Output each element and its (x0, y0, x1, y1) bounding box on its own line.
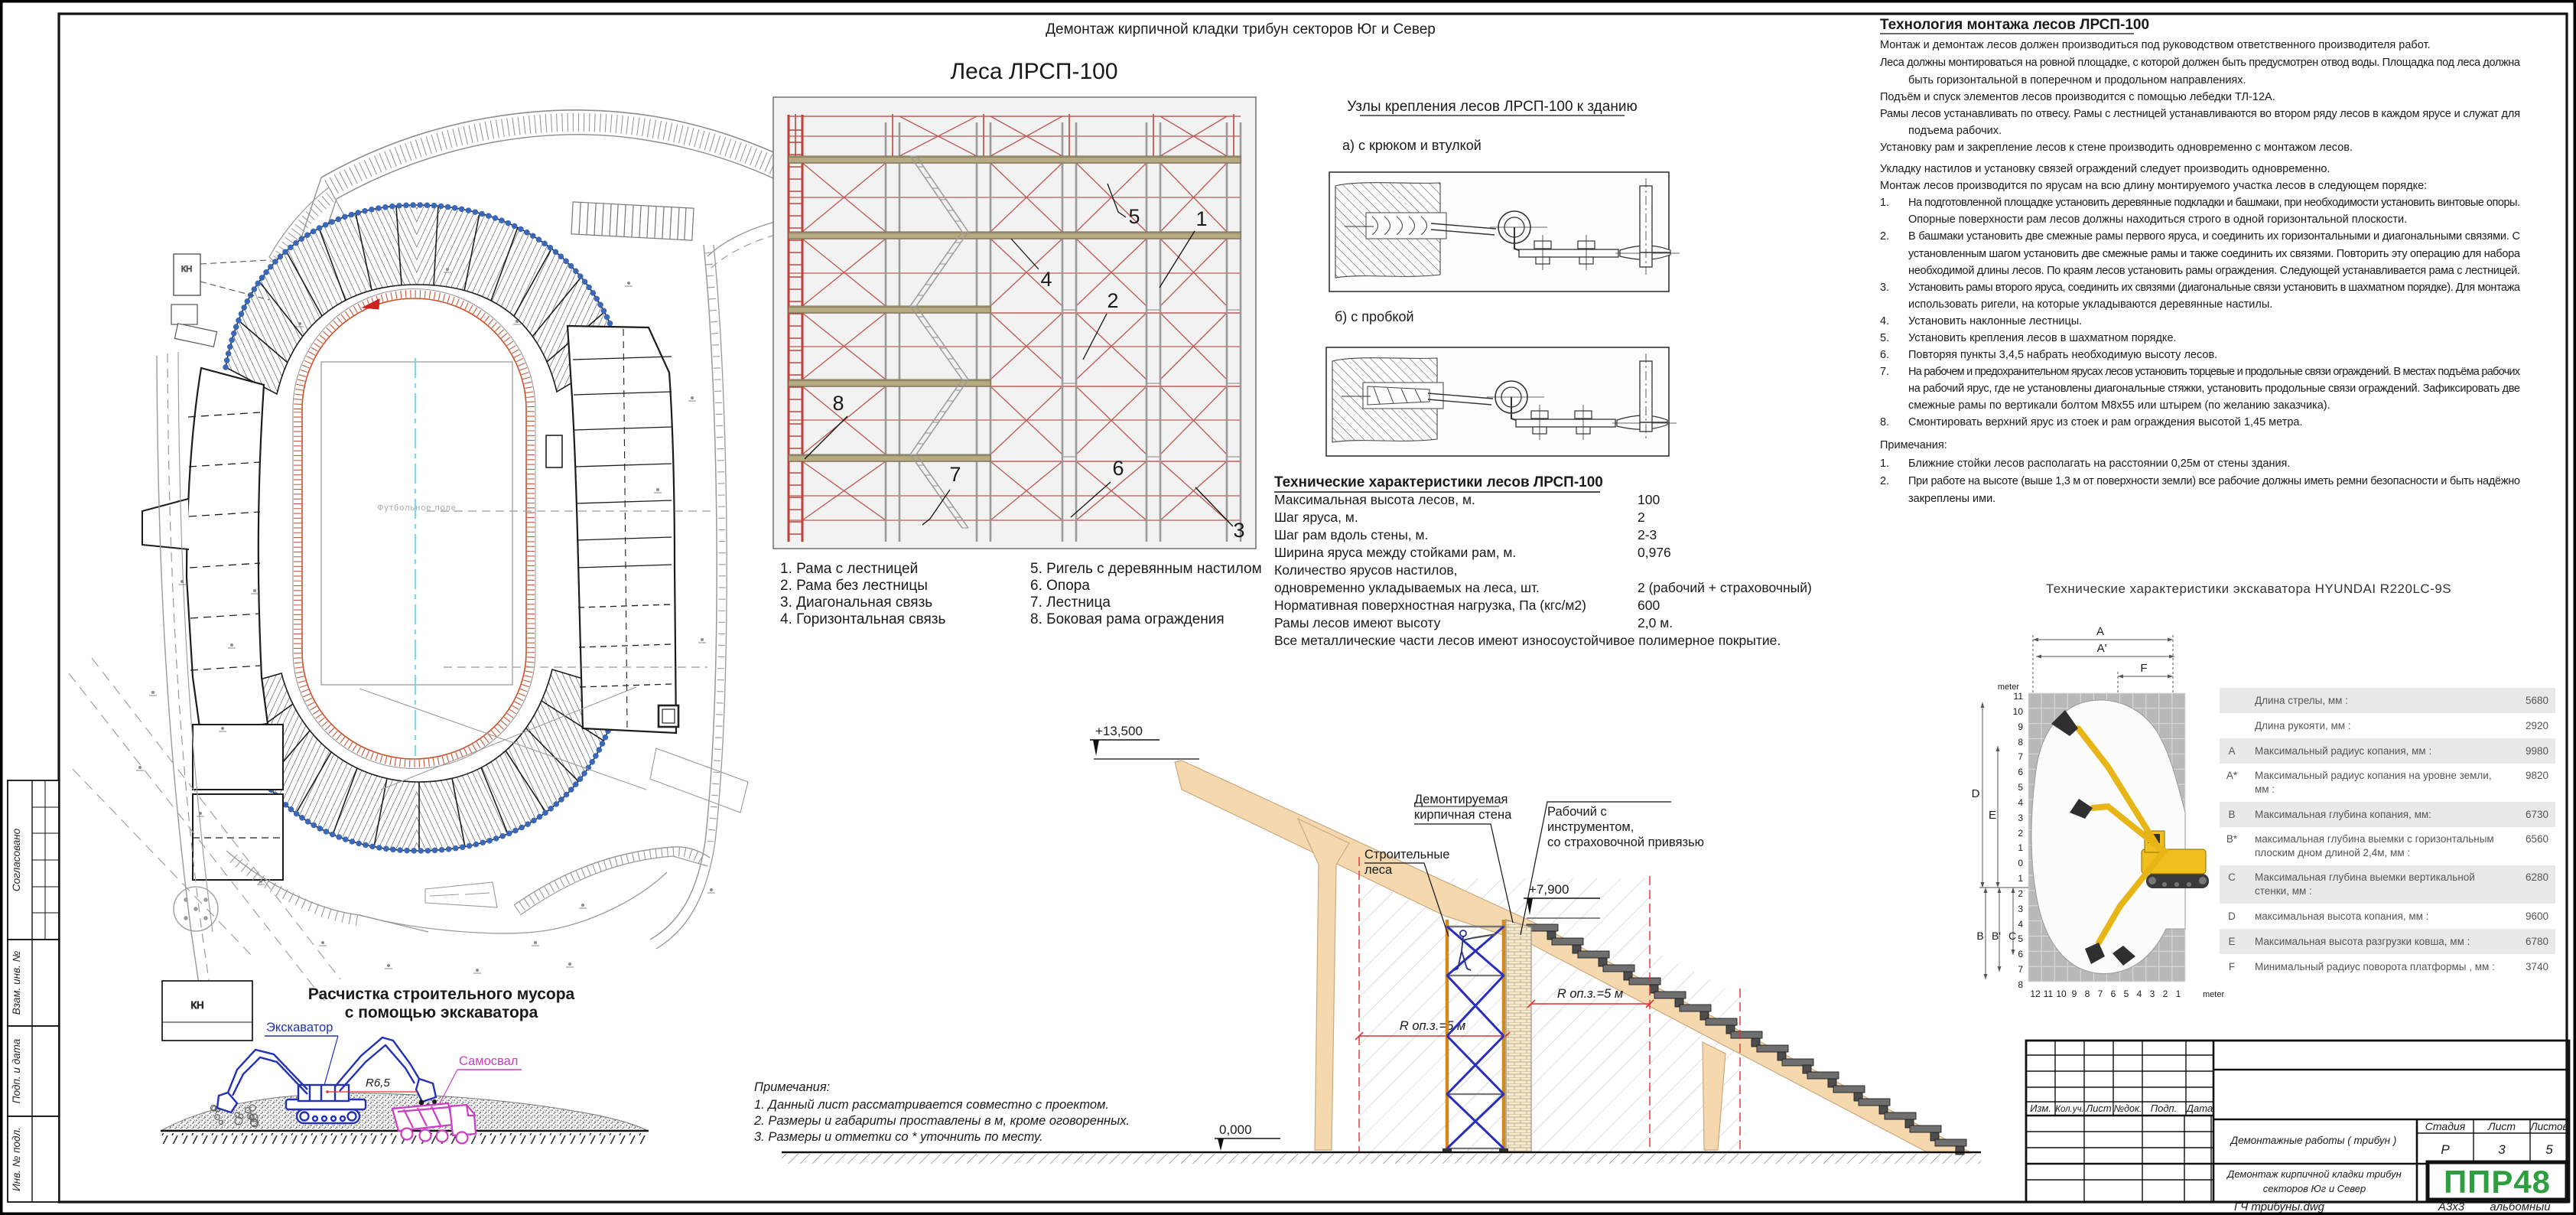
svg-text:8. Боковая рама ограждения: 8. Боковая рама ограждения (1030, 611, 1225, 627)
svg-text:максимальная глубина выемки с: максимальная глубина выемки с горизонтал… (2255, 833, 2494, 845)
svg-text:Леса должны монтироваться на р: Леса должны монтироваться на ровной площ… (1880, 57, 2521, 69)
svg-text:Максимальная высота разгрузки: Максимальная высота разгрузки ковша, мм … (2255, 936, 2470, 947)
svg-text:D: D (2228, 910, 2236, 922)
svg-text:Ближние стойки лесов располага: Ближние стойки лесов располагать на расс… (1908, 458, 2290, 470)
svg-text:инструментом,: инструментом, (1547, 820, 1634, 834)
svg-text:Демонтаж кирпичной кладки триб: Демонтаж кирпичной кладки трибун (2226, 1168, 2402, 1180)
svg-text:Демонтаж кирпичной кладки триб: Демонтаж кирпичной кладки трибун секторо… (1046, 21, 1436, 37)
svg-text:В башмаки установить две смежн: В башмаки установить две смежные рамы пе… (1908, 230, 2520, 243)
svg-text:максимальная высота копания, м: максимальная высота копания, мм : (2255, 910, 2428, 922)
svg-text:Демонтируемая: Демонтируемая (1414, 793, 1508, 806)
svg-text:2.: 2. (1880, 230, 1889, 243)
svg-text:Максимальный радиус копания на: Максимальный радиус копания на уровне зе… (2255, 770, 2492, 781)
svg-text:Установку рам и закрепление ле: Установку рам и закрепление лесов к стен… (1880, 142, 2353, 154)
svg-text:Демонтажные работы ( трибун ): Демонтажные работы ( трибун ) (2230, 1135, 2397, 1146)
svg-text:кирпичная стена: кирпичная стена (1414, 808, 1512, 822)
svg-text:3. Диагональная связь: 3. Диагональная связь (780, 594, 932, 611)
svg-text:1. Рама с лестницей: 1. Рама с лестницей (780, 561, 918, 577)
svg-text:использовать ригели, на которы: использовать ригели, на которые укладыва… (1908, 298, 2272, 311)
svg-text:Количество ярусов настилов,: Количество ярусов настилов, (1274, 562, 1457, 578)
svg-text:мм :: мм : (2255, 783, 2275, 795)
svg-text:2: 2 (1107, 289, 1118, 312)
svg-text:7: 7 (949, 463, 961, 486)
svg-text:600: 600 (1638, 598, 1660, 613)
svg-text:11: 11 (2044, 989, 2054, 999)
svg-text:Технические характеристики лес: Технические характеристики лесов ЛРСП-10… (1274, 474, 1603, 490)
svg-text:3: 3 (2150, 989, 2155, 999)
svg-text:Максимальная глубина копания,: Максимальная глубина копания, мм: (2255, 809, 2431, 820)
svg-text:2: 2 (2018, 828, 2023, 839)
svg-text:Максимальная глубина выемки ве: Максимальная глубина выемки вертикальной (2255, 871, 2475, 883)
svg-text:Строительные: Строительные (1364, 848, 1449, 862)
svg-text:Нормативная поверхностная нагр: Нормативная поверхностная нагрузка, Па (… (1274, 598, 1586, 613)
svg-text:6280: 6280 (2526, 871, 2548, 883)
svg-text:леса: леса (1364, 863, 1393, 877)
svg-text:B': B' (1992, 930, 2001, 942)
svg-text:A: A (2228, 745, 2235, 757)
svg-text:3740: 3740 (2526, 961, 2548, 972)
svg-text:5. Ригель с деревянным настило: 5. Ригель с деревянным настилом (1030, 561, 1262, 577)
svg-text:Технология монтажа лесов ЛРСП-: Технология монтажа лесов ЛРСП-100 (1880, 17, 2149, 33)
svg-text:7: 7 (2018, 751, 2023, 762)
svg-text:8: 8 (2018, 737, 2023, 748)
svg-text:1: 1 (2018, 842, 2023, 853)
svg-text:Установить наклонные лестницы.: Установить наклонные лестницы. (1908, 315, 2082, 327)
svg-text:Длина рукояти, мм :: Длина рукояти, мм : (2255, 720, 2351, 731)
svg-text:9820: 9820 (2526, 770, 2548, 781)
svg-text:6: 6 (2111, 989, 2116, 999)
svg-text:9: 9 (2018, 722, 2023, 732)
svg-text:Технические характеристики экс: Технические характеристики экскаватора H… (2046, 581, 2451, 596)
svg-text:закреплены ими.: закреплены ими. (1908, 493, 1995, 505)
svg-text:А3х3: А3х3 (2438, 1200, 2465, 1213)
svg-text:4: 4 (1040, 268, 1052, 291)
svg-text:Смонтировать верхний ярус из с: Смонтировать верхний ярус из стоек и рам… (1908, 416, 2303, 428)
svg-text:Взам. инв. №: Взам. инв. № (11, 950, 22, 1015)
svg-text:Подп. и дата: Подп. и дата (11, 1038, 22, 1103)
svg-text:а) с крюком и втулкой: а) с крюком и втулкой (1342, 138, 1482, 153)
svg-text:3: 3 (2498, 1142, 2506, 1157)
svg-text:10: 10 (2013, 706, 2024, 717)
svg-text:5.: 5. (1880, 332, 1889, 344)
svg-text:Лист: Лист (2487, 1120, 2516, 1132)
svg-text:2: 2 (2018, 888, 2023, 899)
svg-text:Установить крепления лесов в ш: Установить крепления лесов в шахматном п… (1908, 332, 2177, 344)
svg-text:Монтаж лесов производится по я: Монтаж лесов производится по ярусам на в… (1880, 180, 2427, 192)
svg-text:с помощью экскаватора: с помощью экскаватора (345, 1004, 538, 1021)
svg-text:9600: 9600 (2526, 910, 2548, 922)
svg-text:6.: 6. (1880, 349, 1889, 361)
svg-text:3: 3 (2018, 904, 2023, 914)
svg-text:4. Горизонтальная связь: 4. Горизонтальная связь (780, 611, 945, 627)
svg-text:6: 6 (2018, 767, 2023, 777)
svg-text:Рамы лесов имеют высоту: Рамы лесов имеют высоту (1274, 615, 1441, 630)
svg-text:Примечания:: Примечания: (1880, 439, 1947, 451)
svg-text:1. Данный лист рассматривается: 1. Данный лист рассматривается совместно… (754, 1098, 1109, 1112)
svg-text:R6,5: R6,5 (366, 1077, 390, 1090)
svg-text:1: 1 (2018, 873, 2023, 884)
svg-text:быть горизонтальной в поперечн: быть горизонтальной в поперечном и продо… (1908, 74, 2246, 86)
svg-text:5680: 5680 (2526, 695, 2548, 706)
svg-text:Минимальный радиус поворота пл: Минимальный радиус поворота платформы , … (2255, 961, 2495, 972)
svg-text:B*: B* (2226, 833, 2238, 845)
svg-text:A*: A* (2226, 770, 2238, 781)
svg-text:Шаг рам вдоль стены, м.: Шаг рам вдоль стены, м. (1274, 527, 1428, 542)
svg-text:Установить рамы второго яруса,: Установить рамы второго яруса, соединить… (1908, 282, 2521, 294)
svg-text:11: 11 (2014, 691, 2024, 702)
svg-text:подъема рабочих.: подъема рабочих. (1908, 125, 2002, 137)
svg-text:3: 3 (2018, 813, 2023, 823)
svg-text:9: 9 (2072, 989, 2077, 999)
svg-text:F: F (2229, 961, 2235, 972)
svg-text:Примечания:: Примечания: (754, 1080, 830, 1094)
svg-text:C: C (2228, 871, 2236, 883)
svg-text:Опорные поверхности рам лесов: Опорные поверхности рам лесов должны нах… (1908, 213, 2407, 226)
svg-text:2-3: 2-3 (1638, 527, 1657, 542)
svg-text:9980: 9980 (2526, 745, 2548, 757)
svg-text:1.: 1. (1880, 458, 1889, 470)
svg-text:7: 7 (2018, 964, 2023, 975)
svg-text:Подп.: Подп. (2151, 1103, 2178, 1114)
svg-text:Листов: Листов (2529, 1121, 2568, 1132)
svg-text:8: 8 (2018, 979, 2023, 990)
svg-text:6: 6 (2018, 949, 2023, 959)
svg-text:одновременно укладываемых на л: одновременно укладываемых на леса, шт. (1274, 580, 1540, 595)
svg-text:6560: 6560 (2526, 833, 2548, 845)
svg-text:Изм.: Изм. (2030, 1103, 2051, 1114)
svg-text:2 (рабочий + страховочный): 2 (рабочий + страховочный) (1638, 580, 1812, 595)
svg-text:ГЧ трибуны.dwg: ГЧ трибуны.dwg (2234, 1200, 2325, 1213)
svg-text:6780: 6780 (2526, 936, 2548, 947)
svg-text:б) с пробкой: б) с пробкой (1335, 309, 1414, 324)
svg-text:meter: meter (2203, 990, 2224, 999)
svg-text:+7,900: +7,900 (1529, 882, 1569, 897)
svg-text:Согласовано: Согласовано (11, 828, 22, 891)
svg-text:Шаг яруса, м.: Шаг яруса, м. (1274, 510, 1358, 525)
svg-text:секторов Юг и Север: секторов Юг и Север (2263, 1183, 2366, 1194)
svg-text:1: 1 (2176, 989, 2181, 999)
svg-text:2.: 2. (1880, 475, 1889, 487)
svg-text:2. Размеры и габариты проставл: 2. Размеры и габариты проставлены в м, к… (753, 1114, 1130, 1128)
svg-text:7.: 7. (1880, 366, 1889, 378)
svg-text:необходимой длины лесов. По кр: необходимой длины лесов. По краям лесов … (1908, 265, 2520, 277)
svg-text:+13,500: +13,500 (1095, 724, 1143, 738)
svg-text:A': A' (2097, 642, 2107, 655)
svg-text:ППР48: ППР48 (2444, 1164, 2551, 1200)
svg-text:A: A (2096, 625, 2104, 638)
svg-text:Р: Р (2441, 1142, 2450, 1157)
svg-text:со страховочной привязью: со страховочной привязью (1547, 836, 1704, 849)
svg-text:стенки, мм :: стенки, мм : (2255, 885, 2312, 897)
svg-text:Дата: Дата (2185, 1103, 2213, 1114)
svg-text:6. Опора: 6. Опора (1030, 578, 1090, 594)
svg-text:КН: КН (181, 265, 192, 274)
svg-text:5: 5 (1128, 205, 1140, 228)
svg-text:Длина стрелы, мм :: Длина стрелы, мм : (2255, 695, 2348, 706)
svg-text:Экскаватор: Экскаватор (266, 1021, 333, 1034)
svg-text:на рабочий ярус, где не устано: на рабочий ярус, где не установлены диаг… (1908, 383, 2520, 395)
svg-text:Стадия: Стадия (2425, 1120, 2466, 1132)
svg-text:Расчистка строительного мусора: Расчистка строительного мусора (308, 985, 575, 1003)
svg-text:Леса ЛРСП-100: Леса ЛРСП-100 (950, 59, 1117, 84)
svg-text:Максимальная высота лесов, м.: Максимальная высота лесов, м. (1274, 492, 1475, 507)
svg-text:F: F (2140, 662, 2147, 675)
svg-text:альбомный: альбомный (2490, 1200, 2551, 1213)
svg-text:6730: 6730 (2526, 809, 2548, 820)
svg-text:5: 5 (2018, 782, 2023, 793)
svg-text:B: B (2228, 809, 2235, 820)
svg-text:смежные рамы по вертикали болт: смежные рамы по вертикали болтом М8х55 и… (1908, 399, 2330, 412)
svg-text:2920: 2920 (2526, 720, 2548, 731)
svg-text:7: 7 (2098, 989, 2103, 999)
svg-text:8: 8 (832, 392, 844, 415)
svg-text:2: 2 (1638, 510, 1645, 525)
svg-text:3: 3 (1233, 519, 1244, 542)
svg-text:7. Лестница: 7. Лестница (1030, 594, 1111, 611)
svg-text:Подъём и спуск элементов лесов: Подъём и спуск элементов лесов производи… (1880, 91, 2275, 103)
svg-text:6: 6 (1112, 457, 1124, 480)
svg-text:1.: 1. (1880, 197, 1889, 209)
svg-text:На подготовленной площадке уст: На подготовленной площадке установить де… (1908, 197, 2520, 209)
svg-text:5: 5 (2545, 1142, 2553, 1157)
svg-text:Самосвал: Самосвал (459, 1054, 518, 1068)
svg-text:B: B (1976, 930, 1983, 942)
svg-text:Максимальный радиус копания, м: Максимальный радиус копания, мм : (2255, 745, 2431, 757)
svg-text:D: D (1972, 787, 1980, 800)
svg-text:4: 4 (2137, 989, 2142, 999)
svg-text:2,0 м.: 2,0 м. (1638, 615, 1673, 630)
svg-text:Все металлические части лесов: Все металлические части лесов имеют изно… (1274, 633, 1781, 648)
svg-text:Лист: Лист (2085, 1103, 2112, 1114)
svg-text:КН: КН (191, 999, 204, 1011)
svg-text:C: C (2008, 930, 2016, 942)
svg-text:5: 5 (2018, 933, 2023, 944)
svg-text:E: E (2228, 936, 2235, 947)
svg-text:10: 10 (2056, 989, 2067, 999)
svg-text:При работе на высоте (выше 1,3: При работе на высоте (выше 1,3 м от пове… (1908, 475, 2520, 487)
svg-text:0,000: 0,000 (1219, 1122, 1252, 1137)
svg-text:Повторяя пункты 3,4,5 набрать: Повторяя пункты 3,4,5 набрать необходиму… (1908, 349, 2217, 361)
svg-text:Рамы лесов устанавливать по от: Рамы лесов устанавливать по отвесу. Рамы… (1880, 108, 2520, 120)
svg-text:R оп.з.=5 м: R оп.з.=5 м (1557, 987, 1623, 1001)
svg-text:Ширина яруса между стойками ра: Ширина яруса между стойками рам, м. (1274, 545, 1516, 560)
svg-text:Инв. № подл.: Инв. № подл. (11, 1127, 22, 1191)
svg-text:100: 100 (1638, 492, 1660, 507)
svg-text:2. Рама без лестницы: 2. Рама без лестницы (780, 578, 928, 594)
svg-text:0,976: 0,976 (1638, 545, 1671, 560)
svg-text:3.: 3. (1880, 282, 1889, 294)
svg-text:Укладку настилов и установку с: Укладку настилов и установку связей огра… (1880, 163, 2330, 175)
svg-text:плоским дном длиной 2,4м, мм :: плоским дном длиной 2,4м, мм : (2255, 847, 2410, 858)
svg-text:0: 0 (2018, 858, 2023, 868)
svg-text:8.: 8. (1880, 416, 1889, 428)
svg-text:Рабочий с: Рабочий с (1547, 805, 1607, 819)
svg-text:Узлы крепления лесов ЛРСП-100: Узлы крепления лесов ЛРСП-100 к зданию (1347, 99, 1637, 115)
svg-text:4: 4 (2018, 797, 2023, 808)
svg-text:2: 2 (2163, 989, 2168, 999)
svg-text:4.: 4. (1880, 315, 1889, 327)
svg-text:E: E (1989, 809, 1996, 822)
svg-text:4: 4 (2018, 919, 2023, 930)
svg-text:3. Размеры и отметки со * уточ: 3. Размеры и отметки со * уточнить по ме… (754, 1130, 1043, 1144)
svg-text:1: 1 (1195, 207, 1207, 230)
svg-text:12: 12 (2030, 989, 2041, 999)
svg-text:5: 5 (2124, 989, 2129, 999)
svg-text:8: 8 (2085, 989, 2090, 999)
svg-text:На рабочем и предохранительном: На рабочем и предохранительном ярусах ле… (1908, 366, 2521, 378)
svg-text:установленным шагом установить: установленным шагом установить две смежн… (1908, 248, 2521, 260)
svg-text:№док.: №док. (2114, 1103, 2142, 1114)
svg-text:Монтаж и демонтаж лесов должен: Монтаж и демонтаж лесов должен производи… (1880, 39, 2431, 51)
svg-text:Кол.уч.: Кол.уч. (2055, 1105, 2084, 1114)
